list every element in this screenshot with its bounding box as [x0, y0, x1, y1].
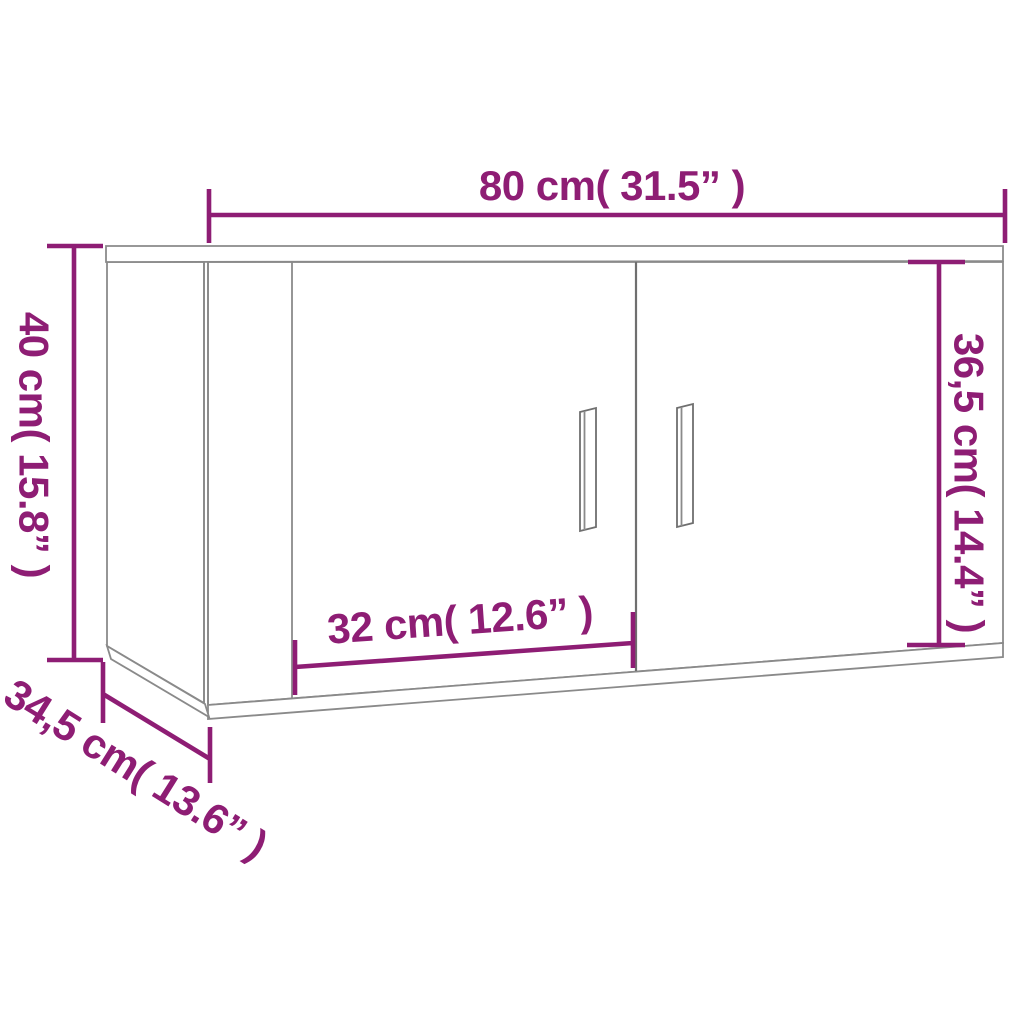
cabinet-top-panel — [106, 246, 1003, 262]
dimension-diagram: 80 cm( 31.5” ) 40 cm( 15.8” ) 36,5 cm( 1… — [0, 0, 1024, 1024]
dimension-height: 40 cm( 15.8” ) — [11, 246, 104, 660]
dimension-inner-height-label: 36,5 cm( 14.4” ) — [946, 333, 993, 633]
cabinet-side-panel — [107, 262, 204, 703]
cabinet-front-left-corner-edge — [204, 262, 208, 705]
handle-left — [580, 408, 596, 531]
dimension-width: 80 cm( 31.5” ) — [209, 162, 1005, 243]
handle-right — [677, 404, 693, 527]
diagram-canvas: 80 cm( 31.5” ) 40 cm( 15.8” ) 36,5 cm( 1… — [0, 0, 1024, 1024]
dimension-height-label: 40 cm( 15.8” ) — [11, 312, 58, 578]
dimension-width-label: 80 cm( 31.5” ) — [479, 162, 745, 209]
